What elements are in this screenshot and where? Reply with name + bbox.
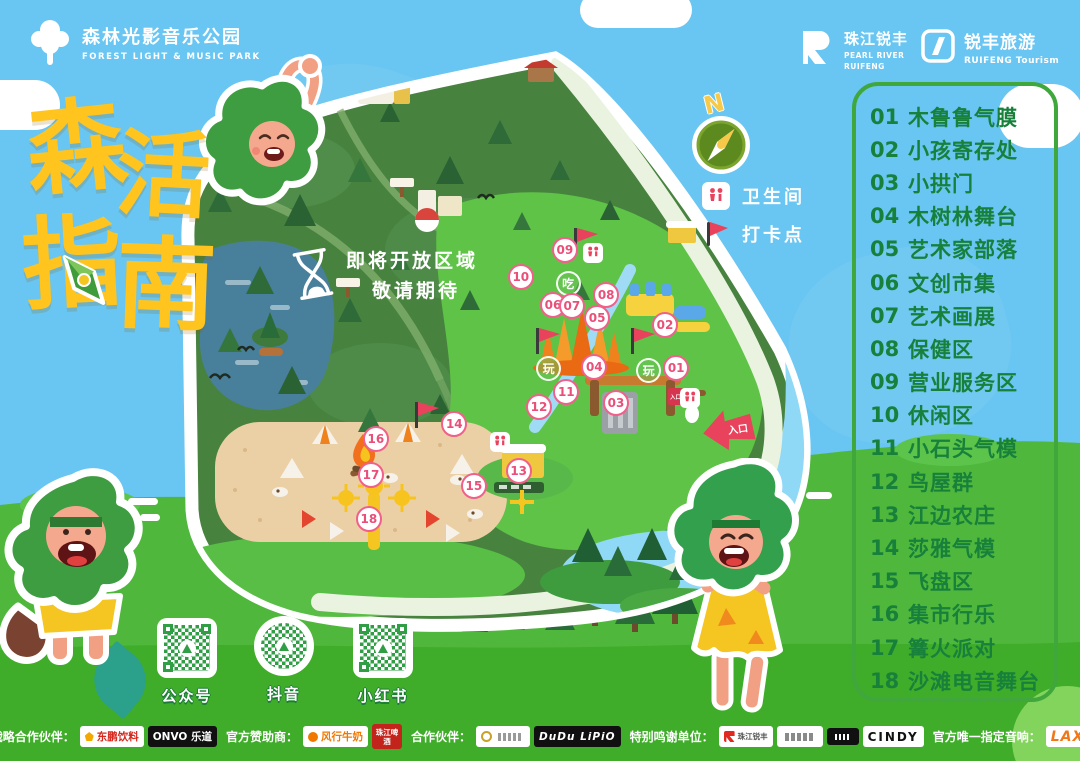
legend-item-number: 13 bbox=[870, 503, 908, 527]
legend-item-number: 14 bbox=[870, 536, 908, 560]
legend-item-name: 小拱门 bbox=[908, 168, 974, 198]
legend-item-name: 莎雅气模 bbox=[908, 533, 996, 563]
brand-ruifeng-tourism: 锐丰旅游 RUIFENG Tourism bbox=[920, 28, 1059, 68]
qr-image bbox=[157, 618, 217, 678]
legend-item: 18 沙滩电音舞台 bbox=[870, 664, 1054, 697]
toilet-icon bbox=[490, 432, 510, 452]
legend-item-name: 休闲区 bbox=[908, 400, 974, 430]
sponsor-bar: 战略合作伙伴： 东鹏饮料ONVO 乐道 官方赞助商： 风行牛奶珠江啤酒 合作伙伴… bbox=[0, 724, 1080, 749]
sponsor-logo bbox=[827, 728, 859, 745]
checkin-flag-icon bbox=[702, 220, 730, 248]
coming-soon-line1: 即将开放区域 bbox=[346, 250, 478, 272]
legend-item-name: 小石头气模 bbox=[908, 433, 1018, 463]
ruifeng-r-icon bbox=[798, 28, 836, 68]
legend-item: 15 飞盘区 bbox=[870, 565, 1054, 598]
legend-item-number: 01 bbox=[870, 105, 908, 129]
qr-code: 抖音 bbox=[253, 616, 315, 704]
title-char: 南 bbox=[114, 234, 217, 337]
legend-item: 01 木鲁鲁气膜 bbox=[870, 100, 1054, 133]
legend-item: 12 鸟屋群 bbox=[870, 465, 1054, 498]
sponsor-segment-label: 战略合作伙伴： bbox=[0, 728, 75, 745]
brand-pearl-river-ruifeng: 珠江锐丰 PEARL RIVER RUIFENG bbox=[798, 28, 908, 72]
sponsor-logo: 珠江锐丰 bbox=[719, 726, 773, 747]
legend-item-name: 江边农庄 bbox=[908, 500, 996, 530]
legend-item: 02 小孩寄存处 bbox=[870, 133, 1054, 166]
legend-item-name: 木树林舞台 bbox=[908, 201, 1018, 231]
key-toilet-label: 卫生间 bbox=[742, 183, 805, 209]
mascot-caveman-icon bbox=[0, 458, 160, 670]
legend-item-number: 09 bbox=[870, 370, 908, 394]
legend-item-number: 17 bbox=[870, 636, 908, 660]
sponsor-segment: 特别鸣谢单位： 珠江锐丰CINDY bbox=[630, 726, 924, 747]
sponsor-logo: 珠江啤酒 bbox=[372, 724, 402, 749]
map-marker: 12 bbox=[526, 394, 552, 420]
brand1-en: PEARL RIVER RUIFENG bbox=[844, 51, 908, 72]
legend-item: 03 小拱门 bbox=[870, 166, 1054, 199]
toilet-icon bbox=[702, 182, 730, 210]
park-tree-icon bbox=[28, 16, 72, 68]
legend-item-name: 木鲁鲁气膜 bbox=[908, 102, 1018, 132]
mascot-top-icon bbox=[192, 48, 334, 236]
qr-code: 公众号 bbox=[156, 618, 218, 706]
brand1-zh: 珠江锐丰 bbox=[844, 28, 908, 49]
qr-label: 公众号 bbox=[161, 685, 212, 706]
cloud bbox=[580, 0, 692, 28]
sponsor-logo: ONVO 乐道 bbox=[148, 726, 217, 747]
map-marker: 16 bbox=[363, 426, 389, 452]
sponsor-logo: 东鹏饮料 bbox=[80, 726, 144, 747]
sponsor-segment-label: 合作伙伴： bbox=[411, 728, 471, 745]
sponsor-segment: 官方赞助商： 风行牛奶珠江啤酒 bbox=[226, 724, 402, 749]
legend-item-name: 篝火派对 bbox=[908, 633, 996, 663]
legend-item-number: 10 bbox=[870, 403, 908, 427]
activity-badge: 玩 bbox=[636, 358, 661, 383]
legend-item-number: 16 bbox=[870, 602, 908, 626]
qr-image bbox=[254, 616, 314, 676]
legend-item-number: 15 bbox=[870, 569, 908, 593]
legend-item-name: 营业服务区 bbox=[908, 367, 1018, 397]
legend-panel: 01 木鲁鲁气膜 02 小孩寄存处 03 小拱门 04 木树林舞台 05 艺术家… bbox=[852, 82, 1058, 702]
map-marker: 13 bbox=[506, 458, 532, 484]
sponsor-logo: CINDY bbox=[863, 726, 924, 747]
legend-item-name: 文创市集 bbox=[908, 268, 996, 298]
brand2-zh: 锐丰旅游 bbox=[964, 28, 1059, 53]
sponsor-logo: LAX bbox=[1046, 726, 1080, 747]
compass: N bbox=[690, 90, 752, 176]
map-marker: 08 bbox=[593, 282, 619, 308]
legend-item-number: 04 bbox=[870, 204, 908, 228]
park-map-poster: 森林光影音乐公园 FOREST LIGHT & MUSIC PARK 珠江锐丰 … bbox=[0, 0, 1080, 761]
map-marker: 10 bbox=[508, 264, 534, 290]
toilet-icon bbox=[583, 243, 603, 263]
legend-item-name: 集市行乐 bbox=[908, 599, 996, 629]
ruifeng-tourism-icon bbox=[920, 28, 956, 66]
legend-item-name: 艺术画展 bbox=[908, 301, 996, 331]
sponsor-segment-label: 官方赞助商： bbox=[226, 728, 298, 745]
map-marker: 15 bbox=[461, 473, 487, 499]
legend-item: 13 江边农庄 bbox=[870, 498, 1054, 531]
legend-item: 10 休闲区 bbox=[870, 399, 1054, 432]
sponsor-segment-label: 官方唯一指定音响： bbox=[933, 728, 1041, 745]
legend-item-name: 飞盘区 bbox=[908, 566, 974, 596]
legend-item-number: 03 bbox=[870, 171, 908, 195]
legend-item: 04 木树林舞台 bbox=[870, 200, 1054, 233]
sponsor-logo: 风行牛奶 bbox=[303, 726, 368, 747]
legend-item-number: 07 bbox=[870, 304, 908, 328]
legend-item-number: 11 bbox=[870, 436, 908, 460]
legend-item: 06 文创市集 bbox=[870, 266, 1054, 299]
legend-item: 08 保健区 bbox=[870, 332, 1054, 365]
legend-item-number: 05 bbox=[870, 237, 908, 261]
legend-item-name: 鸟屋群 bbox=[908, 467, 974, 497]
legend-item-name: 小孩寄存处 bbox=[908, 135, 1018, 165]
map-marker: 05 bbox=[584, 305, 610, 331]
qr-label: 抖音 bbox=[267, 683, 301, 704]
brand2-en: RUIFENG Tourism bbox=[964, 55, 1059, 68]
map-marker: 18 bbox=[356, 506, 382, 532]
title-char: 活 bbox=[114, 128, 213, 227]
legend-item-name: 保健区 bbox=[908, 334, 974, 364]
key-checkin-label: 打卡点 bbox=[742, 221, 805, 247]
legend-item-name: 沙滩电音舞台 bbox=[908, 666, 1040, 696]
map-marker: 17 bbox=[358, 462, 384, 488]
legend-item-number: 08 bbox=[870, 337, 908, 361]
legend-item: 09 营业服务区 bbox=[870, 366, 1054, 399]
sponsor-segment: 官方唯一指定音响： LAX bbox=[933, 726, 1080, 747]
mascot-girl-icon bbox=[664, 458, 808, 716]
legend-item: 11 小石头气模 bbox=[870, 432, 1054, 465]
legend-item-number: 12 bbox=[870, 470, 908, 494]
qr-image bbox=[353, 618, 413, 678]
activity-badge: 玩 bbox=[536, 356, 561, 381]
sponsor-segment-label: 特别鸣谢单位： bbox=[630, 728, 714, 745]
map-marker: 09 bbox=[552, 237, 578, 263]
legend-item-number: 02 bbox=[870, 138, 908, 162]
compass-dial-icon bbox=[690, 114, 752, 176]
sponsor-logo bbox=[777, 726, 823, 747]
sponsor-logo: DuDu LiPiO bbox=[534, 726, 621, 747]
legend-item-name: 艺术家部落 bbox=[908, 234, 1018, 264]
qr-center-logo bbox=[276, 638, 293, 655]
key-toilet: 卫生间 bbox=[702, 182, 805, 210]
map-marker: 04 bbox=[581, 354, 607, 380]
legend-item: 07 艺术画展 bbox=[870, 299, 1054, 332]
map-marker: 07 bbox=[559, 293, 585, 319]
hourglass-icon bbox=[292, 246, 334, 302]
legend-item-number: 18 bbox=[870, 669, 908, 693]
qr-center-logo bbox=[179, 640, 196, 657]
qr-label: 小红书 bbox=[357, 685, 408, 706]
toilet-icon bbox=[680, 388, 700, 408]
park-name-zh: 森林光影音乐公园 bbox=[82, 23, 261, 49]
legend-item: 16 集市行乐 bbox=[870, 598, 1054, 631]
legend-item: 05 艺术家部落 bbox=[870, 233, 1054, 266]
qr-center-logo bbox=[375, 640, 392, 657]
legend-item: 14 莎雅气模 bbox=[870, 531, 1054, 564]
key-checkin: 打卡点 bbox=[702, 220, 805, 248]
sponsor-logo bbox=[476, 726, 530, 747]
legend-item-number: 06 bbox=[870, 271, 908, 295]
sponsor-segment: 战略合作伙伴： 东鹏饮料ONVO 乐道 bbox=[0, 726, 217, 747]
sponsor-segment: 合作伙伴： DuDu LiPiO bbox=[411, 726, 621, 747]
legend-item: 17 篝火派对 bbox=[870, 631, 1054, 664]
coming-soon-line2: 敬请期待 bbox=[346, 276, 478, 306]
qr-code: 小红书 bbox=[352, 618, 414, 706]
map-marker: 03 bbox=[603, 390, 629, 416]
coming-soon-notice: 即将开放区域 敬请期待 bbox=[292, 246, 478, 307]
map-marker: 14 bbox=[441, 411, 467, 437]
